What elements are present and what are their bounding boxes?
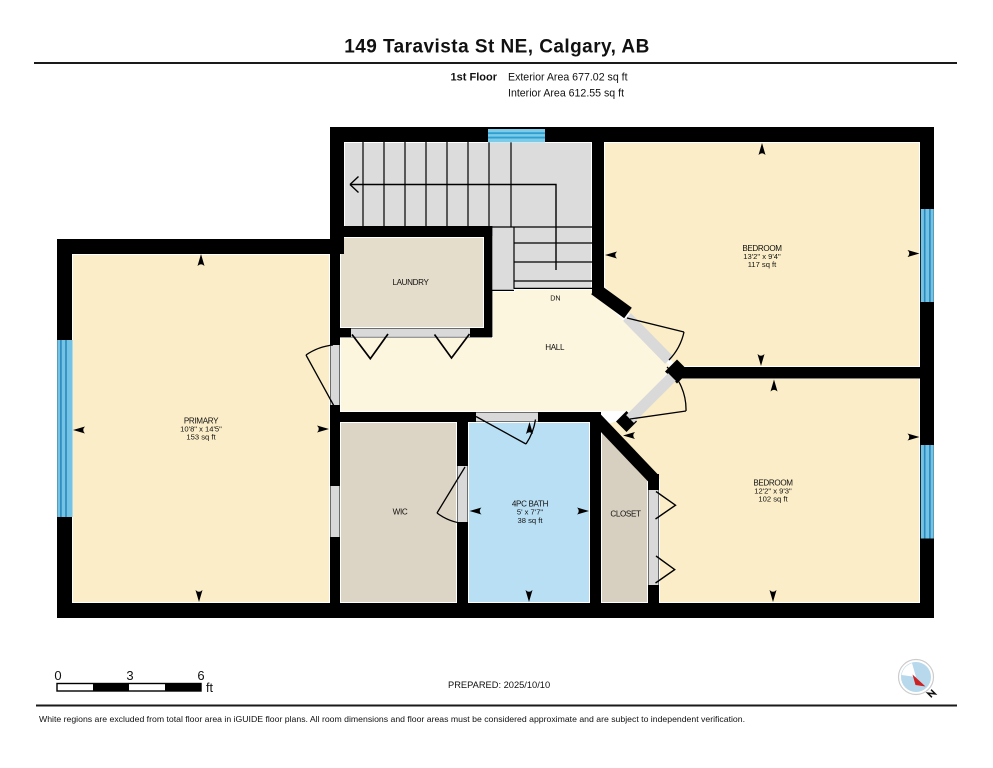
svg-text:6: 6 xyxy=(197,668,204,683)
svg-text:149 Taravista St NE, Calgary,: 149 Taravista St NE, Calgary, AB xyxy=(344,37,650,58)
svg-text:PREPARED: 2025/10/10: PREPARED: 2025/10/10 xyxy=(448,680,550,690)
svg-text:WIC: WIC xyxy=(393,508,408,517)
svg-text:Exterior Area 677.02 sq ft: Exterior Area 677.02 sq ft xyxy=(508,71,628,83)
svg-text:102 sq ft: 102 sq ft xyxy=(758,495,788,504)
svg-text:HALL: HALL xyxy=(545,343,565,352)
svg-text:ft: ft xyxy=(206,681,213,695)
svg-text:0: 0 xyxy=(54,668,61,683)
svg-text:Interior Area 612.55 sq ft: Interior Area 612.55 sq ft xyxy=(508,87,624,99)
svg-text:117 sq ft: 117 sq ft xyxy=(748,260,777,269)
svg-text:White regions are excluded fro: White regions are excluded from total fl… xyxy=(39,714,745,724)
svg-text:CLOSET: CLOSET xyxy=(610,510,641,519)
svg-text:153 sq ft: 153 sq ft xyxy=(186,432,216,441)
svg-text:38 sq ft: 38 sq ft xyxy=(518,516,544,525)
svg-text:LAUNDRY: LAUNDRY xyxy=(392,278,429,287)
svg-text:3: 3 xyxy=(126,668,133,683)
svg-text:1st Floor: 1st Floor xyxy=(451,71,498,83)
svg-text:DN: DN xyxy=(550,294,560,303)
